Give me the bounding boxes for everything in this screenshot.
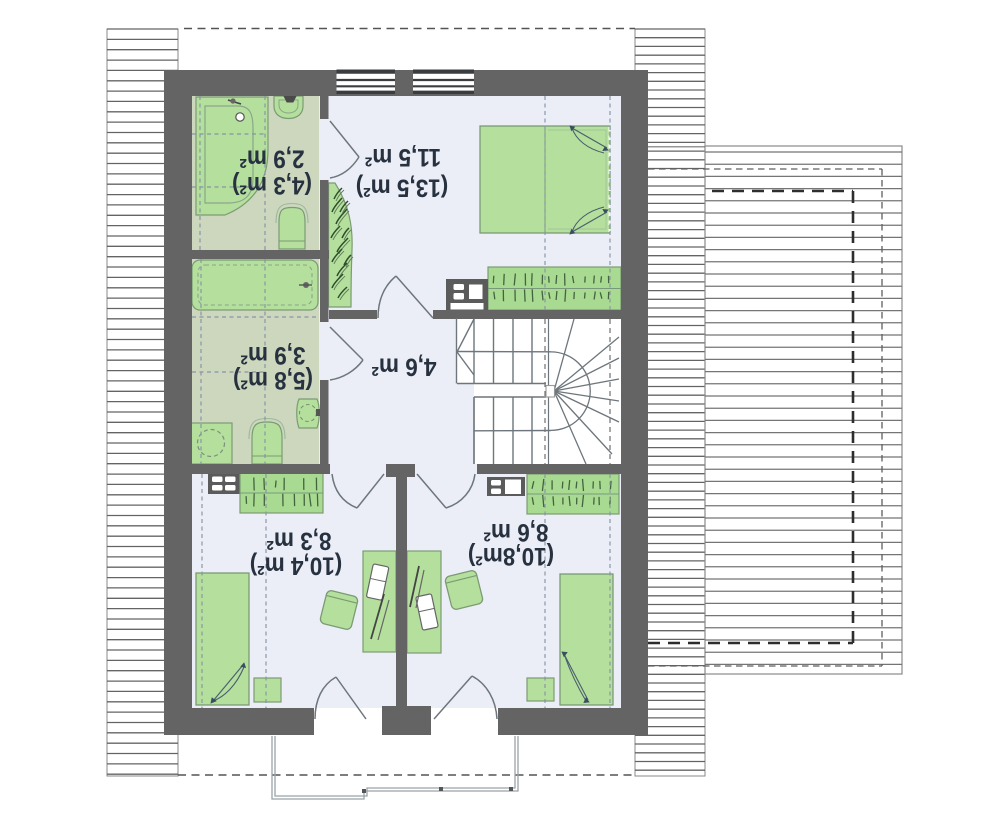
svg-text:(10,8m²): (10,8m²) bbox=[468, 542, 554, 570]
svg-text:(5,8 m²): (5,8 m²) bbox=[233, 366, 313, 394]
svg-text:11,5 m²: 11,5 m² bbox=[365, 143, 441, 171]
svg-text:3,9 m²: 3,9 m² bbox=[240, 341, 305, 369]
svg-text:8,3 m²: 8,3 m² bbox=[266, 526, 331, 554]
svg-text:4,6 m²: 4,6 m² bbox=[371, 352, 436, 380]
svg-text:(13,5 m²): (13,5 m²) bbox=[356, 173, 448, 201]
svg-text:2,9 m²: 2,9 m² bbox=[239, 144, 304, 172]
svg-text:(10,4 m²): (10,4 m²) bbox=[250, 551, 342, 579]
svg-text:(4,3 m²): (4,3 m²) bbox=[232, 171, 312, 199]
